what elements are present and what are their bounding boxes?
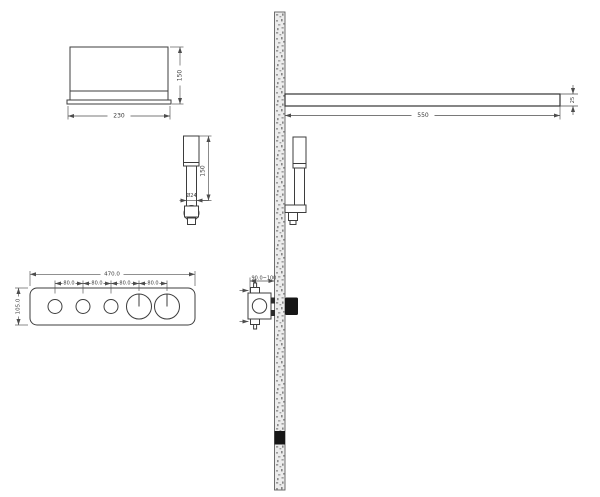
arm-thickness-dimension: 25 [560, 85, 578, 115]
wall-hatch-strip [275, 12, 286, 490]
panel-spacing-label: 80.0 [91, 281, 102, 287]
handshower-body [295, 168, 305, 206]
shower-system-technical-drawing: 550 25 230 [0, 0, 600, 497]
mounting-screw [271, 298, 275, 304]
showerhead-front-view: 230 150 [67, 47, 184, 120]
handshower-holder-bracket [285, 205, 306, 213]
arm-length-dimension: 550 [285, 106, 560, 120]
connector-nut [185, 206, 199, 217]
panel-height-label: 105.0 [16, 298, 22, 314]
valve-cartridge-circle [252, 299, 266, 313]
diverter-button [76, 300, 90, 314]
valve-depth-label: 90.0~100 [252, 276, 277, 282]
showerhead-height-label: 150 [177, 70, 184, 82]
connector-outlet [188, 218, 196, 225]
control-panel-front-view: 470.0 80.0 80.0 80.0 80.0 105 [15, 271, 195, 325]
panel-height-dimension: 105.0 [15, 288, 28, 325]
panel-spacing-label: 80.0 [147, 281, 158, 287]
panel-spacing-label: 80.0 [63, 281, 74, 287]
valve-knob [285, 298, 298, 316]
arm-length-label: 550 [417, 112, 429, 119]
shower-arm-side-view: 550 25 [285, 85, 578, 120]
handshower-body [187, 166, 197, 206]
diverter-button [48, 300, 62, 314]
mounting-screw [271, 310, 275, 316]
wall-mounted-handshower [285, 137, 306, 225]
diverter-button [104, 300, 118, 314]
handshower-length-label: 150 [200, 165, 207, 177]
inlet-nut-top [251, 288, 260, 294]
handshower-holder-tab [290, 221, 296, 225]
handshower-head [184, 136, 200, 166]
showerhead-width-label: 230 [113, 113, 125, 120]
inlet-nut-bottom [251, 319, 260, 325]
shower-arm-bar [285, 94, 560, 106]
showerhead-width-dimension: 230 [68, 106, 170, 120]
panel-spacing-label: 80.0 [119, 281, 130, 287]
valve-side-view: 90.0~100 [240, 276, 299, 330]
wall-section [275, 12, 286, 490]
handshower-length-dimension: 150 [199, 136, 212, 201]
handshower-detail-view: Ø24 150 [180, 136, 212, 225]
panel-width-label: 470.0 [104, 271, 120, 277]
inlet-stem-bottom [254, 325, 257, 330]
showerhead-outline [70, 47, 168, 100]
drawing-page: 550 25 230 [0, 0, 600, 497]
inlet-stem-top [254, 283, 257, 288]
handshower-diameter-label: Ø24 [186, 192, 196, 199]
showerhead-face-plate [67, 100, 171, 104]
arm-thickness-label: 25 [570, 97, 576, 103]
handshower-holder-clip [289, 213, 298, 221]
wall-dark-band [275, 431, 286, 445]
showerhead-height-dimension: 150 [170, 47, 184, 104]
